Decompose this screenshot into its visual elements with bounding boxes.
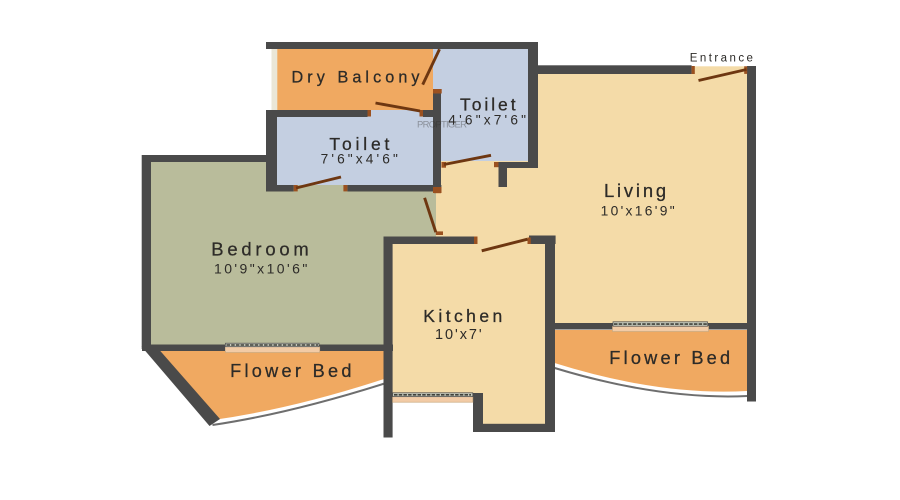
- svg-text:7'6"x4'6": 7'6"x4'6": [321, 152, 398, 167]
- svg-text:Flower Bed: Flower Bed: [609, 348, 730, 368]
- svg-text:Flower Bed: Flower Bed: [230, 361, 351, 381]
- svg-text:Living: Living: [604, 180, 666, 201]
- svg-text:Dry Balcony: Dry Balcony: [292, 69, 421, 87]
- svg-text:10'x16'9": 10'x16'9": [601, 204, 675, 219]
- svg-text:Entrance: Entrance: [690, 52, 753, 64]
- svg-text:PROPTIGER: PROPTIGER: [417, 120, 467, 131]
- svg-text:10'9"x10'6": 10'9"x10'6": [214, 261, 307, 277]
